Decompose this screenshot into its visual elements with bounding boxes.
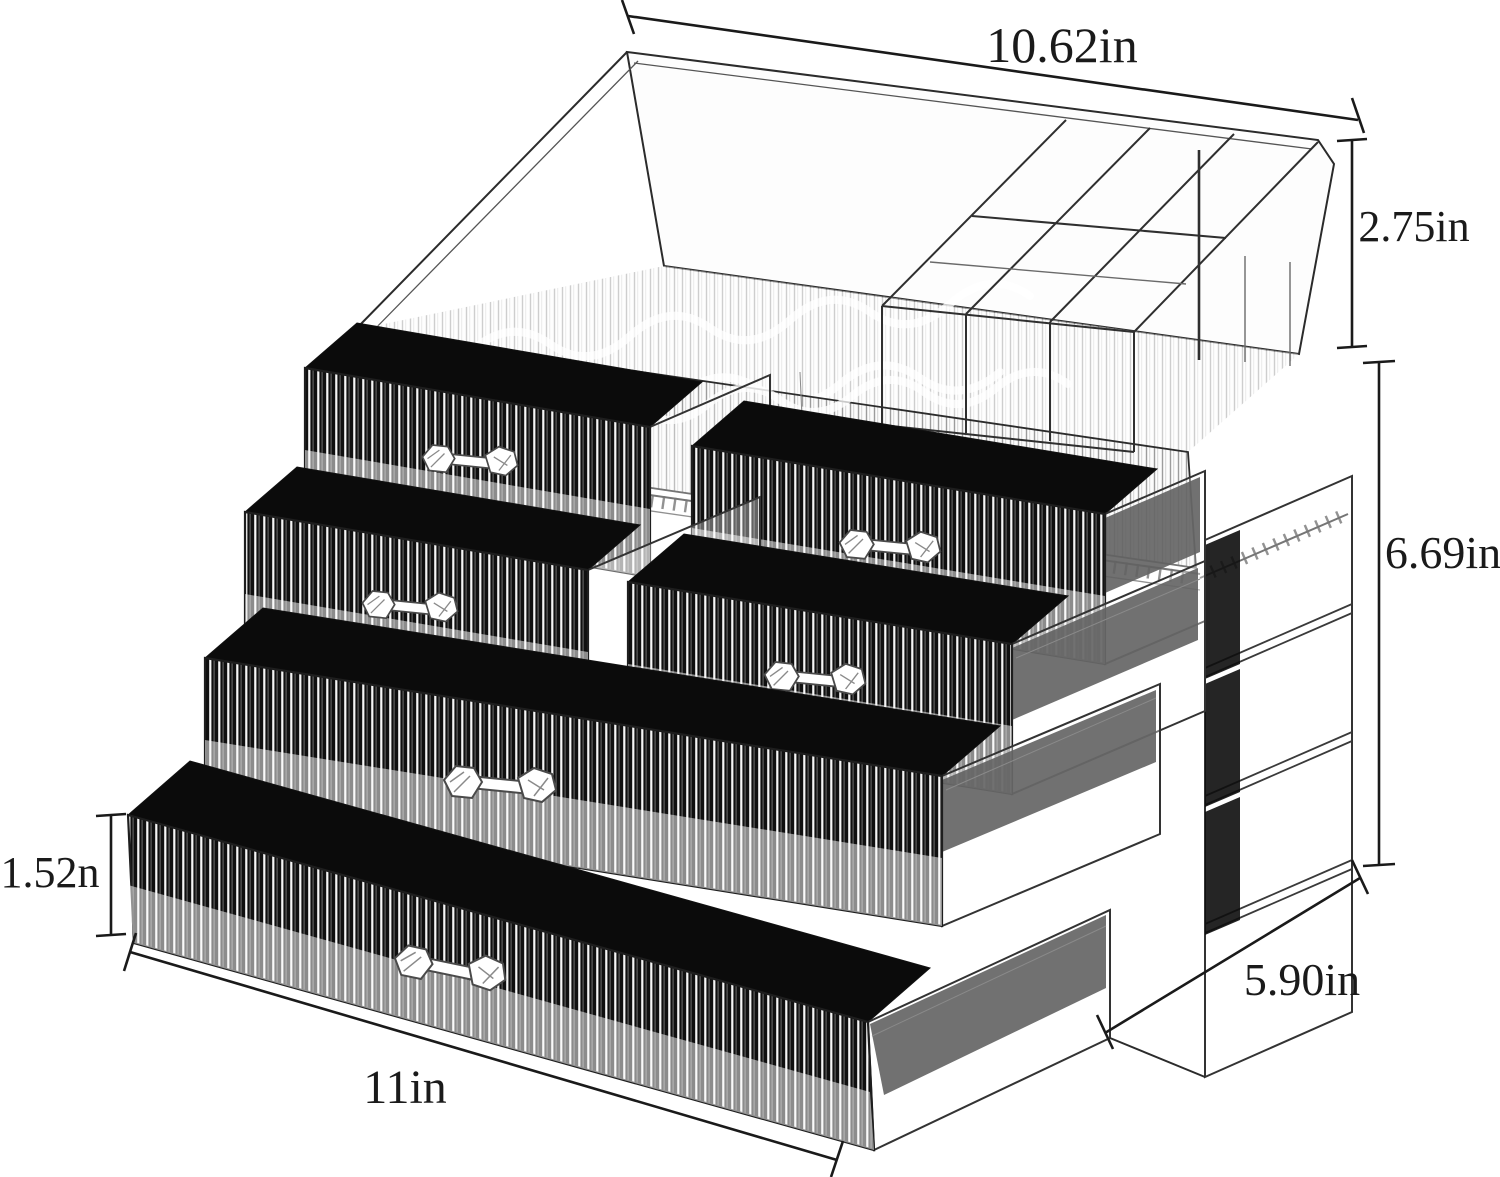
dimension-top-section-height: 2.75in (1337, 139, 1470, 348)
dimension-label-top-section-height: 2.75in (1358, 202, 1469, 251)
product-dimension-diagram: 10.62in 2.75in 6.69in 1.52n 11in (0, 0, 1500, 1177)
dimension-label-drawer-section-height: 6.69in (1385, 527, 1500, 578)
dimension-label-top-width: 10.62in (986, 17, 1137, 73)
dimension-drawer-section-height: 6.69in (1363, 361, 1500, 866)
organizer-illustration: 10.62in 2.75in 6.69in 1.52n 11in (0, 0, 1500, 1177)
dimension-label-bottom-drawer-height: 1.52n (1, 848, 100, 897)
cabinet-interior-shadows (1205, 530, 1240, 935)
dimension-label-base-width: 11in (363, 1061, 447, 1114)
cabinet-bottom-edge (1110, 1038, 1205, 1077)
dimension-label-base-depth: 5.90in (1244, 954, 1360, 1005)
dimension-bottom-drawer-height: 1.52n (1, 814, 127, 936)
drawer-side-panel (868, 910, 1110, 1150)
